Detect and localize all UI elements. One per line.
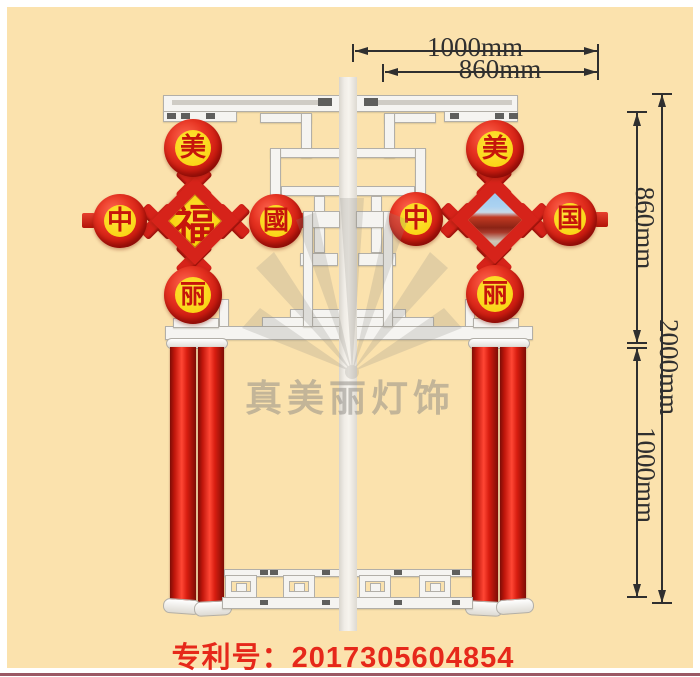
disc-character: 國: [260, 205, 292, 237]
fret-bar: [281, 186, 340, 196]
fret-box: [420, 576, 450, 597]
fret-bar: [415, 148, 426, 196]
arrow-icon: [633, 113, 641, 126]
mount-drop-left: [303, 211, 313, 327]
knot-left-right-disc: 國: [249, 194, 303, 248]
bolt-slot: [206, 113, 215, 119]
knot-right-left-disc: 中: [389, 192, 443, 246]
bolt-slot: [260, 600, 268, 605]
bolt-slot: [452, 600, 460, 605]
arrow-icon: [385, 68, 398, 76]
arrow-icon: [633, 584, 641, 597]
fret-core: [295, 584, 304, 591]
bolt-slot: [452, 570, 460, 575]
knot-right-right-disc: 国: [543, 192, 597, 246]
disc-character: 国: [554, 203, 586, 235]
arrow-icon: [633, 348, 641, 361]
bolt-slot: [322, 600, 330, 605]
bolt-slot: [394, 570, 402, 575]
bolt-slot: [260, 570, 268, 575]
knot-right-top-disc: 美: [466, 120, 524, 178]
arrow-icon: [658, 590, 666, 603]
fret-core: [371, 584, 380, 591]
fret-core: [431, 584, 440, 591]
bolt-slot: [322, 570, 330, 575]
bolt-slot: [318, 98, 332, 106]
fret-bar: [270, 148, 281, 196]
bar-groove: [370, 100, 512, 105]
bolt-slot: [181, 113, 190, 119]
dim-label-1000-right: 1000mm: [632, 405, 660, 545]
lamp-pole: [339, 77, 357, 631]
arrow-icon: [584, 47, 597, 55]
diagram-canvas: 1000mm 860mm 860mm 2000mm 1000mm: [0, 0, 700, 677]
dim-label-860-right: 860mm: [631, 168, 659, 288]
bolt-slot: [509, 113, 518, 119]
knot-left-bottom-disc: 丽: [164, 266, 222, 324]
fret-box: [360, 576, 390, 597]
bottom-frame-line: [0, 673, 700, 676]
knot-left-center-character: 福: [164, 190, 226, 252]
disc-character: 丽: [477, 276, 513, 312]
fret-core: [237, 584, 246, 591]
red-column: [472, 347, 498, 602]
dim-label-860-top: 860mm: [430, 55, 570, 83]
bolt-slot: [167, 113, 176, 119]
arrow-icon: [584, 68, 597, 76]
knot-right-bottom-disc: 丽: [466, 265, 524, 323]
disc-character: 美: [477, 131, 513, 167]
bolt-slot: [450, 113, 459, 119]
disc-character: 中: [104, 205, 136, 237]
bar-groove: [172, 100, 322, 105]
arrow-icon: [633, 330, 641, 343]
fret-box: [226, 576, 256, 597]
column-bottom-cap: [496, 598, 535, 616]
disc-character: 美: [175, 130, 211, 166]
arrow-icon: [658, 94, 666, 107]
red-column: [170, 347, 196, 602]
knot-left-top-disc: 美: [164, 119, 222, 177]
bolt-slot: [495, 113, 504, 119]
patent-number-text: 专利号：2017305604854: [0, 634, 686, 676]
red-column: [198, 347, 224, 602]
red-column: [500, 347, 526, 602]
dim-ext-line: [382, 64, 384, 82]
disc-character: 丽: [175, 277, 211, 313]
bolt-slot: [364, 98, 378, 106]
fret-box: [284, 576, 314, 597]
knot-left-left-disc: 中: [93, 194, 147, 248]
arrow-icon: [355, 47, 368, 55]
disc-character: 中: [400, 203, 432, 235]
dim-ext-line: [352, 44, 354, 62]
bolt-slot: [394, 600, 402, 605]
dim-ext-line: [597, 44, 599, 80]
bolt-slot: [270, 570, 278, 575]
